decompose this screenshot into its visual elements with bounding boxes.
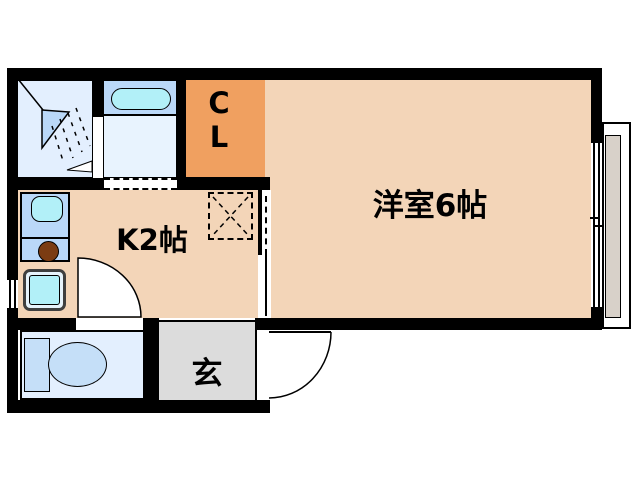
wall-toilet-entrance-divider	[143, 318, 159, 413]
label-entrance: 玄	[189, 348, 225, 393]
wall-left-upper	[7, 68, 18, 280]
wall-bath-closet-divider	[177, 68, 186, 177]
label-closet-line2: L	[202, 120, 236, 154]
floor-plan: 洋室6帖 K2帖 玄 C L	[0, 0, 638, 480]
wall-right-upper	[591, 68, 602, 143]
wall-kitchen-toilet	[7, 318, 76, 330]
folding-door-icon	[104, 178, 177, 190]
wall-bottom-left	[7, 400, 270, 413]
wall-closet-bottom	[177, 177, 270, 190]
shower-spray-icon	[18, 79, 92, 172]
small-window-icon	[7, 280, 18, 308]
opening-solid-line	[265, 255, 267, 316]
label-kitchen: K2帖	[107, 217, 197, 259]
toilet-door-swing-icon	[78, 258, 141, 317]
wall-shower-bottom	[7, 178, 104, 190]
entrance-door-swing-icon	[269, 332, 331, 398]
opening-dashed-line	[265, 196, 267, 255]
label-closet: C L	[202, 86, 236, 154]
wall-opening-stub	[258, 190, 262, 255]
wall-bottom-main	[255, 318, 602, 330]
sliding-window-icon	[591, 143, 602, 307]
label-closet-line1: C	[202, 86, 236, 120]
label-western-room: 洋室6帖	[350, 180, 510, 225]
wall-shower-bath-divider	[93, 68, 103, 117]
